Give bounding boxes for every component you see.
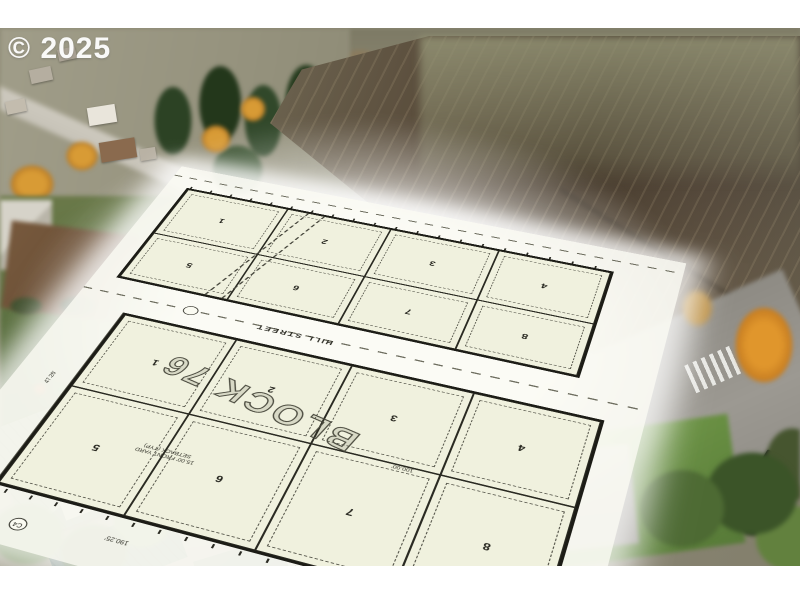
hill-street-label: HILL STREET	[254, 323, 334, 346]
letterbox-bottom	[0, 566, 800, 600]
copyright-watermark: © 2025	[8, 32, 111, 66]
plat-overlay-wrap: 1 2 3 4 5 6 7 8 HILL	[40, 86, 660, 566]
letterbox-top	[0, 0, 800, 28]
aerial-photo: 1 2 3 4 5 6 7 8 HILL	[0, 28, 800, 566]
point-marker	[181, 305, 201, 316]
plat-map-overlay: 1 2 3 4 5 6 7 8 HILL	[0, 166, 686, 566]
autumn-tree-right	[722, 290, 800, 400]
screenshot-root: 1 2 3 4 5 6 7 8 HILL	[0, 0, 800, 600]
point-marker-c4: C4	[5, 516, 30, 532]
dimension-label: 47.26'	[43, 371, 58, 384]
dimension-label: 190.25'	[104, 534, 131, 546]
